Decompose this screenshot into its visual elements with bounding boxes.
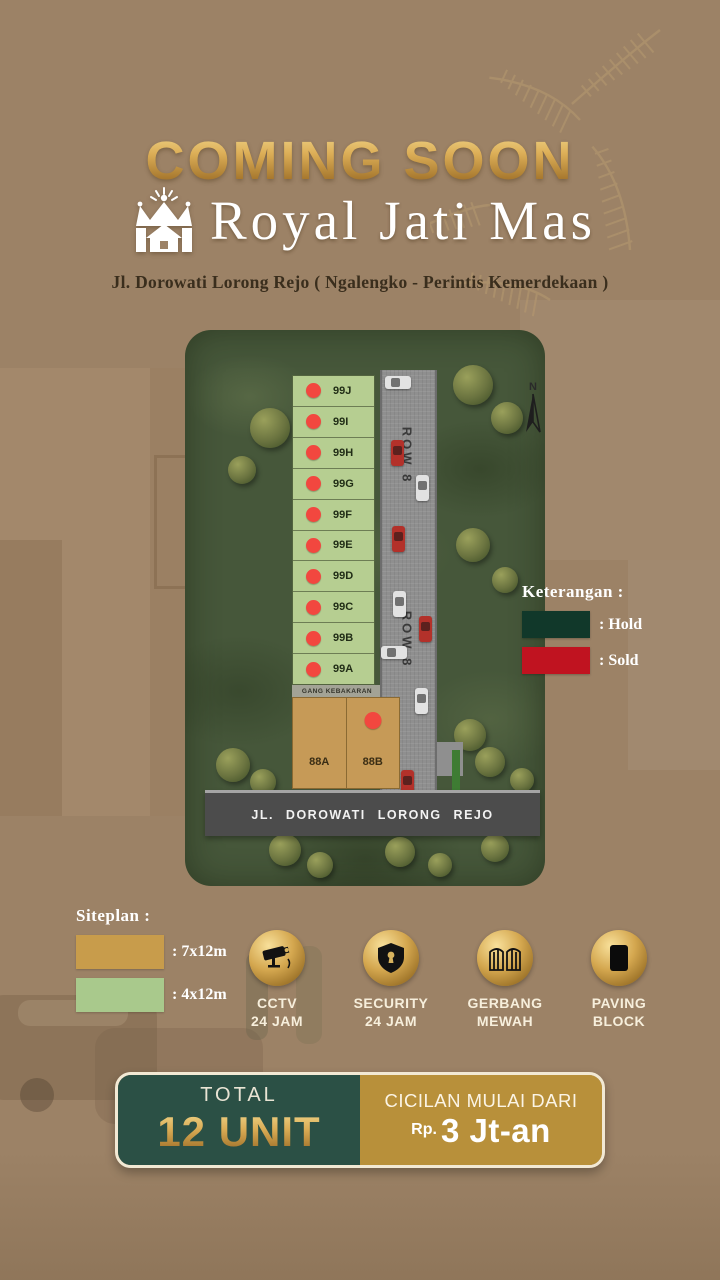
security-shield-icon [363, 930, 419, 986]
background-house-shadow [0, 540, 62, 816]
siteplan-map: 99J 99I 99H 99G 99F 99E 99D 99C 99B 99A … [185, 330, 545, 886]
crown-house-logo-icon [124, 186, 204, 254]
coming-soon-heading: COMING SOON [0, 130, 720, 192]
tree-icon [228, 456, 256, 484]
paving-block-icon [591, 930, 647, 986]
legend-row-4x12: : 4x12m [76, 978, 227, 1012]
main-road: JL. DOROWATI LORONG REJO [205, 790, 540, 836]
summary-banner: TOTAL 12 UNIT CICILAN MULAI DARI Rp. 3 J… [115, 1072, 605, 1168]
sold-dot-icon [306, 476, 321, 491]
status-legend-title: Keterangan : [522, 582, 642, 602]
total-units-panel: TOTAL 12 UNIT [118, 1075, 360, 1165]
lot-row: 99E [293, 531, 374, 562]
sold-dot-icon [306, 569, 321, 584]
compass-north-label: N [521, 382, 545, 392]
background-house-facade [0, 368, 196, 816]
amount-value: 3 Jt-an [441, 1112, 551, 1150]
amenity-cctv: CCTV 24 JAM [217, 930, 337, 1029]
sold-color-swatch [522, 647, 590, 674]
sold-dot-icon [306, 445, 321, 460]
total-label: TOTAL [200, 1084, 278, 1107]
brand-row: Royal Jati Mas [0, 186, 720, 254]
tree-icon [250, 408, 290, 448]
lot-88a: 88A [293, 698, 347, 788]
white-car-icon [381, 646, 407, 659]
size-legend: Siteplan : : 7x12m : 4x12m [76, 906, 227, 1012]
lot-label: 99I [333, 416, 348, 428]
red-car-icon [392, 526, 405, 552]
status-legend: Keterangan : : Hold : Sold [522, 582, 642, 674]
sold-dot-icon [306, 538, 321, 553]
lot-row: 99H [293, 438, 374, 469]
green-verge [452, 750, 460, 792]
size-legend-title: Siteplan : [76, 906, 227, 926]
lot-row: 99I [293, 407, 374, 438]
size-7x12-swatch [76, 935, 164, 969]
small-lot-column: 99J 99I 99H 99G 99F 99E 99D 99C 99B 99A [292, 375, 375, 685]
lot-label: 99J [333, 385, 351, 397]
lot-label: 99F [333, 509, 352, 521]
tree-icon [453, 365, 493, 405]
installment-value: Rp. 3 Jt-an [411, 1112, 551, 1150]
lot-row: 99J [293, 376, 374, 407]
amenity-paving: PAVING BLOCK [559, 930, 679, 1029]
sold-dot-icon [306, 631, 321, 646]
tree-icon [492, 567, 518, 593]
tree-icon [269, 834, 301, 866]
luxury-gate-icon [477, 930, 533, 986]
tree-icon [307, 852, 333, 878]
white-car-icon [385, 376, 411, 389]
lot-row: 99F [293, 500, 374, 531]
tree-icon [428, 853, 452, 877]
lot-label: 99E [333, 539, 353, 551]
hold-color-swatch [522, 611, 590, 638]
tree-icon [216, 748, 250, 782]
installment-label: CICILAN MULAI DARI [384, 1090, 577, 1112]
brand-title: Royal Jati Mas [210, 189, 596, 252]
red-car-icon [419, 616, 432, 642]
currency-label: Rp. [411, 1121, 437, 1139]
sold-dot-icon [306, 600, 321, 615]
total-units-value: 12 UNIT [157, 1108, 320, 1156]
legend-row-7x12: : 7x12m [76, 935, 227, 969]
legend-row-sold: : Sold [522, 647, 642, 674]
row8-label: ROW 8 [399, 611, 414, 669]
amenity-gate: GERBANG MEWAH [445, 930, 565, 1029]
tree-icon [475, 747, 505, 777]
white-car-icon [415, 688, 428, 714]
sold-dot-icon [306, 383, 321, 398]
lot-row: 99D [293, 561, 374, 592]
lot-label: 99A [333, 663, 353, 675]
legend-row-hold: : Hold [522, 611, 642, 638]
compass: N [521, 382, 545, 443]
cctv-icon [249, 930, 305, 986]
lot-row: 99B [293, 623, 374, 654]
tree-icon [385, 837, 415, 867]
amenity-security: SECURITY 24 JAM [331, 930, 451, 1029]
white-car-icon [416, 475, 429, 501]
background-car-wheel [20, 1078, 54, 1112]
sold-dot-icon [306, 507, 321, 522]
sold-dot-icon [306, 662, 321, 677]
tree-icon [510, 768, 534, 792]
main-road-label: JL. DOROWATI LORONG REJO [251, 808, 493, 822]
tree-icon [456, 528, 490, 562]
lot-label: 99C [333, 601, 353, 613]
lot-label: 99B [333, 632, 353, 644]
lot-row: 99C [293, 592, 374, 623]
property-flyer: COMING SOON Royal Jati Mas Jl. Dorowati … [0, 0, 720, 1280]
project-address: Jl. Dorowati Lorong Rejo ( Ngalengko - P… [0, 272, 720, 293]
lot-row: 99G [293, 469, 374, 500]
lot-label: 99D [333, 570, 353, 582]
lot-label: 99H [333, 447, 353, 459]
background-bottom-shade [0, 1150, 720, 1280]
installment-panel: CICILAN MULAI DARI Rp. 3 Jt-an [360, 1075, 602, 1165]
red-car-icon [391, 440, 404, 466]
lot-88b: 88B [347, 698, 400, 788]
sold-dot-icon [364, 712, 381, 729]
lot-label: 99G [333, 478, 354, 490]
lot-row: 99A [293, 654, 374, 684]
north-arrow-icon [522, 392, 544, 438]
white-car-icon [393, 591, 406, 617]
background-wall-right [520, 300, 720, 560]
tree-icon [491, 402, 523, 434]
large-lot-block: 88A 88B [292, 697, 400, 789]
size-4x12-swatch [76, 978, 164, 1012]
tree-icon [481, 834, 509, 862]
sold-dot-icon [306, 414, 321, 429]
